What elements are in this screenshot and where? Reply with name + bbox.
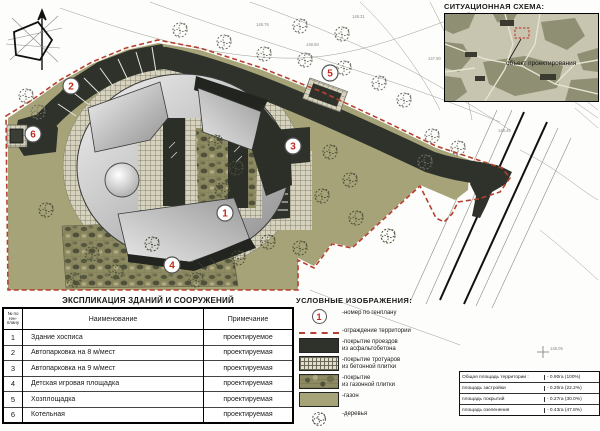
tree-icon [309,410,329,428]
red-dashed-line-symbol [299,332,339,334]
legend-item-fence: -ограждение территории [296,327,464,335]
svg-text:148.76: 148.76 [256,22,269,27]
marker-6: 6 [25,126,41,142]
explication-table: № по ген-плану Наименование Примечание 1… [2,307,294,424]
legend-item-asphalt: -покрытие проездов из асфальтобетона [296,338,464,353]
legend-item-number: 1 -номер по генплану [296,309,464,324]
areas-table: Общая площадь территории : - 0.90га (100… [459,371,600,416]
area-row: Общая площадь территории : - 0.90га (100… [460,372,599,382]
col-header-number: № по ген-плану [3,308,23,330]
marker-3: 3 [285,138,301,154]
svg-text:3: 3 [290,142,296,153]
svg-text:148.50: 148.50 [306,42,319,47]
area-row: площадь покрытий - 0.27га (30.0%) [460,393,599,404]
lawn-tile-swatch [299,374,339,389]
design-object-label: объект проектирования [506,59,577,67]
svg-text:148.05: 148.05 [550,346,563,351]
marker-4: 4 [164,257,180,273]
area-row: площадь застройки - 0.20га (22.2%) [460,382,599,393]
col-header-name: Наименование [23,308,204,330]
legend-panel: УСЛОВНЫЕ ИЗОБРАЖЕНИЯ: 1 -номер по генпла… [296,296,464,431]
table-row: 4 Детская игровая площадка проектируемая [3,376,293,392]
lawn-swatch [299,392,339,407]
svg-text:2: 2 [68,82,74,93]
svg-text:148.45: 148.45 [498,128,511,133]
marker-5: 5 [322,65,338,81]
situation-map: объект проектирования [444,13,599,102]
legend-item-lawn: -газон [296,392,464,407]
table-row: 5 Хозплощадка проектируемая [3,392,293,408]
svg-text:1: 1 [222,209,228,220]
svg-text:6: 6 [30,130,36,141]
area-row: площадь озеленения - 0.43га (47.8%) [460,404,599,415]
north-arrow [6,10,62,70]
table-row: 1 Здание хосписа проектируемое [3,330,293,346]
situation-title: СИТУАЦИОННАЯ СХЕМА: [444,2,598,11]
asphalt-swatch [299,338,339,353]
svg-text:5: 5 [327,69,333,80]
sample-number-circle: 1 [312,309,327,324]
col-header-note: Примечание [204,308,294,330]
existing-road [410,110,571,308]
genplan-sheet: { "explication": { "title": "ЭКСПЛИКАЦИЯ… [0,0,600,418]
legend-item-concrete-tile: -покрытие тротуаров из бетонной плитки [296,356,464,371]
concrete-tile-swatch [299,356,339,371]
boiler-house [7,125,27,147]
marker-1: 1 [217,205,233,221]
legend-title: УСЛОВНЫЕ ИЗОБРАЖЕНИЯ: [296,296,464,305]
legend-item-trees: -деревья [296,410,464,428]
svg-text:4: 4 [169,261,175,272]
situation-panel: СИТУАЦИОННАЯ СХЕМА: [444,2,598,102]
marker-2: 2 [63,78,79,94]
explication-panel: ЭКСПЛИКАЦИЯ ЗДАНИЙ И СООРУЖЕНИЙ № по ген… [2,296,294,424]
explication-title: ЭКСПЛИКАЦИЯ ЗДАНИЙ И СООРУЖЕНИЙ [2,296,294,305]
legend-item-lawn-tile: -покрытие из газонной плитки [296,374,464,389]
table-row: 3 Автопарковка на 9 м/мест проектируемая [3,361,293,377]
table-row: 2 Автопарковка на 8 м/мест проектируемая [3,345,293,361]
svg-text:148.31: 148.31 [352,14,365,19]
situation-map-drawing: объект проектирования [445,14,598,101]
table-row: 6 Котельная проектируемая [3,407,293,423]
svg-text:147.90: 147.90 [428,56,441,61]
